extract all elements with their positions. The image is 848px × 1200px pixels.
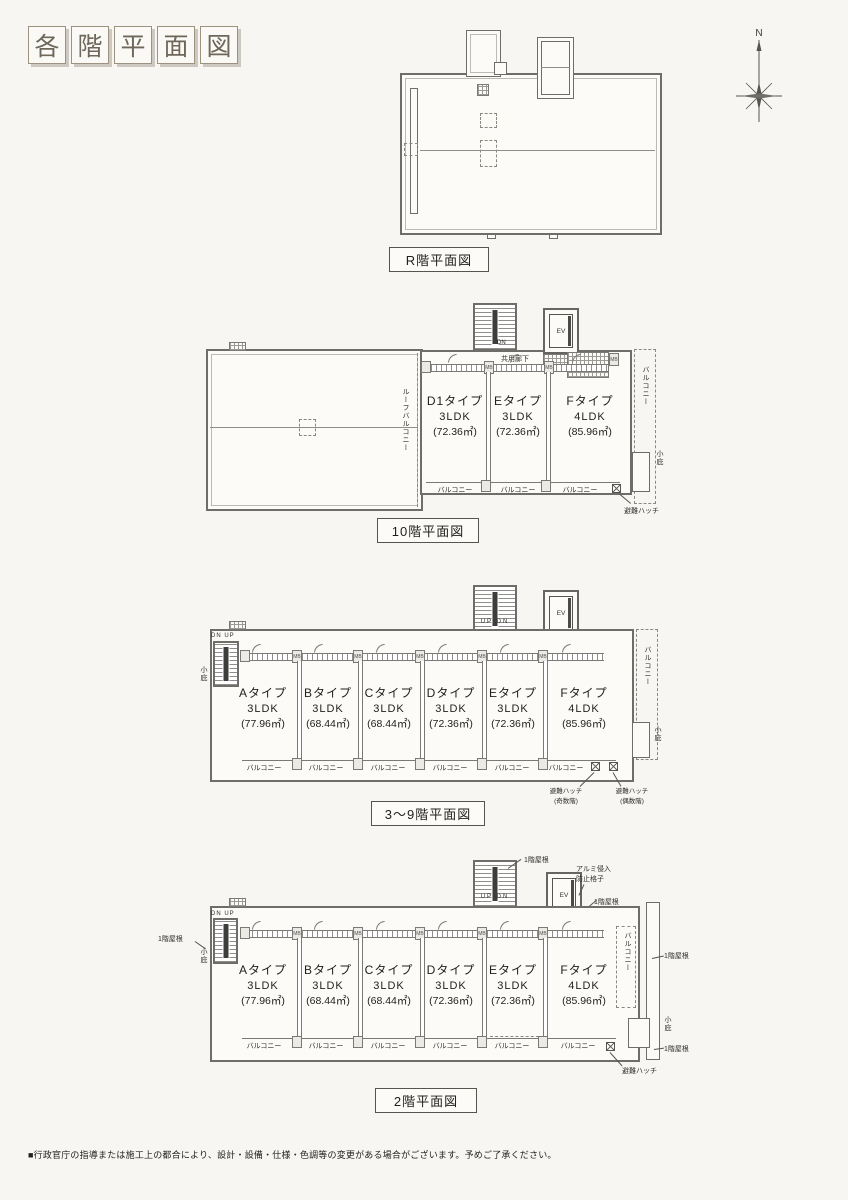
f39-balcony-post: [538, 758, 548, 770]
unit-label-e: Eタイプ 3LDK (72.36㎡): [489, 392, 547, 439]
f2-corridor-post: [240, 927, 250, 939]
roof-divider-line: [420, 150, 655, 151]
unit-name: Dタイプ: [422, 961, 480, 978]
unit-layout: 3LDK: [484, 703, 542, 715]
alumi-grate-line1: アルミ侵入: [576, 864, 611, 874]
alumi-grate-line2: 防止格子: [576, 874, 611, 884]
f39-corridor-post: [240, 650, 250, 662]
unit-label-b: Bタイプ 3LDK (68.44㎡): [299, 961, 357, 1008]
unit-area: (85.96㎡): [546, 993, 622, 1008]
f2-unit-f-extension: [628, 1018, 650, 1048]
escape-hatch-note: (奇数階): [536, 795, 596, 805]
f2-stair-updn-label: UP DN: [474, 894, 516, 900]
unit-area: (72.36㎡): [484, 716, 542, 731]
f2-escape-hatch-label: 避難ハッチ: [622, 1066, 657, 1076]
f2-balcony-label: バルコニー: [421, 1041, 479, 1051]
disclaimer-text: ■行政官庁の指導または施工上の都合により、設計・設備・仕様・色調等の変更がある場…: [28, 1148, 557, 1161]
unit-area: (72.36㎡): [424, 424, 486, 439]
north-compass-icon: N: [716, 24, 802, 128]
unit-layout: 3LDK: [231, 703, 295, 715]
unit-name: Cタイプ: [360, 684, 418, 701]
unit-name: Fタイプ: [546, 961, 622, 978]
escape-hatch-text: 避難ハッチ: [536, 785, 596, 795]
roof-equipment-pad: [480, 140, 497, 167]
f39-eave-right-label: 小庇: [652, 726, 662, 742]
roof-elevator-inner: [541, 41, 570, 95]
title-char-box: 平: [114, 26, 152, 64]
f10-balcony-post: [481, 480, 491, 492]
unit-layout: 3LDK: [360, 703, 418, 715]
f39-eave-left-label: 小庇: [198, 666, 208, 682]
title-char-box: 図: [200, 26, 238, 64]
f39-balcony-label: バルコニー: [297, 763, 355, 773]
title-char-box: 面: [157, 26, 195, 64]
f2-alumi-grate-label: アルミ侵入 防止格子: [576, 864, 611, 884]
unit-area: (85.96㎡): [549, 424, 631, 439]
unit-name: Dタイプ: [422, 684, 480, 701]
escape-hatch-icon: [612, 484, 621, 493]
f2-balcony-label: バルコニー: [549, 1041, 607, 1051]
scanned-floorplan-sheet: 各 階 平 面 図 N R階平面図 ルーフバルコニー: [0, 0, 848, 1200]
f39-balcony-label: バルコニー: [359, 763, 417, 773]
unit-name: Bタイプ: [299, 961, 357, 978]
unit-name: Eタイプ: [484, 961, 542, 978]
roof-elevator-tower: [537, 37, 574, 99]
f39-left-staircase-icon: [213, 641, 239, 687]
unit-label-a: Aタイプ 3LDK (77.96㎡): [231, 961, 295, 1008]
f2-roof1-top-label: 1階屋根: [524, 855, 549, 865]
leader-line: [620, 494, 631, 504]
f39-balcony-post: [353, 758, 363, 770]
unit-name: D1タイプ: [424, 392, 486, 409]
roof-left-pad: [404, 143, 418, 156]
f10-roof-balcony-label: ルーフバルコニー: [400, 388, 410, 452]
unit-label-d1: D1タイプ 3LDK (72.36㎡): [424, 392, 486, 439]
f10-stair-dn-label: DN: [497, 340, 506, 346]
f39-elevator-label: EV: [549, 596, 573, 630]
f10-elevator-label: EV: [549, 314, 573, 348]
unit-area: (68.44㎡): [360, 716, 418, 731]
f2-balcony-label: バルコニー: [235, 1041, 293, 1051]
unit-name: Bタイプ: [299, 684, 357, 701]
unit-layout: 3LDK: [489, 411, 547, 423]
unit-label-e: Eタイプ 3LDK (72.36㎡): [484, 961, 542, 1008]
unit-layout: 3LDK: [422, 703, 480, 715]
f39-balcony-label: バルコニー: [421, 763, 479, 773]
f39-balcony-post: [292, 758, 302, 770]
caption-roof-plan: R階平面図: [389, 247, 489, 272]
unit-layout: 3LDK: [299, 980, 357, 992]
unit-area: (77.96㎡): [231, 716, 295, 731]
unit-layout: 3LDK: [231, 980, 295, 992]
unit-area: (72.36㎡): [422, 716, 480, 731]
roof-stair-lobby: [494, 62, 507, 75]
caption-2f-plan: 2階平面図: [375, 1088, 477, 1113]
unit-name: Eタイプ: [489, 392, 547, 409]
escape-hatch-icon: [591, 762, 600, 771]
f10-side-balcony-label: バルコニー: [640, 366, 650, 406]
unit-area: (77.96㎡): [231, 993, 295, 1008]
f39-entry-vent: [229, 621, 246, 630]
roof-plan-outline: [400, 73, 662, 235]
f2-balcony-label: バルコニー: [359, 1041, 417, 1051]
f10-staircase-icon: [473, 303, 517, 351]
f39-unit-f-extension: [632, 722, 650, 758]
roof-elevator-divider: [541, 67, 570, 68]
unit-name: Fタイプ: [546, 684, 622, 701]
unit-area: (72.36㎡): [484, 993, 542, 1008]
f2-side-balcony-label: バルコニー: [622, 932, 632, 972]
escape-hatch-icon: [606, 1042, 615, 1051]
unit-label-d: Dタイプ 3LDK (72.36㎡): [422, 684, 480, 731]
unit-area: (85.96㎡): [546, 716, 622, 731]
unit-name: Cタイプ: [360, 961, 418, 978]
unit-area: (68.44㎡): [299, 716, 357, 731]
compass-n-label: N: [755, 28, 762, 39]
unit-layout: 3LDK: [360, 980, 418, 992]
f10-terrace-vent: [229, 342, 246, 351]
f10-eave-label: 小庇: [654, 450, 664, 466]
caption-3-9f-plan: 3〜9階平面図: [371, 801, 485, 826]
unit-name: Eタイプ: [484, 684, 542, 701]
f10-balcony-label: バルコニー: [552, 485, 608, 495]
f39-balcony-post: [477, 758, 487, 770]
f39-balcony-post: [415, 758, 425, 770]
unit-layout: 4LDK: [549, 411, 631, 423]
unit-name: Fタイプ: [549, 392, 631, 409]
unit-label-f: Fタイプ 4LDK (85.96㎡): [549, 392, 631, 439]
unit-layout: 3LDK: [299, 703, 357, 715]
roof-bottom-tab: [549, 234, 558, 239]
f10-terrace-dashed-boundary: [417, 353, 418, 507]
unit-label-a: Aタイプ 3LDK (77.96㎡): [231, 684, 295, 731]
f10-balcony-label: バルコニー: [427, 485, 483, 495]
unit-area: (72.36㎡): [422, 993, 480, 1008]
f39-stair-dnup-label: DN UP: [211, 633, 235, 639]
unit-label-f: Fタイプ 4LDK (85.96㎡): [546, 961, 622, 1008]
unit-label-c: Cタイプ 3LDK (68.44㎡): [360, 684, 418, 731]
f2-stair-dnup-label: DN UP: [211, 911, 235, 917]
escape-hatch-text: 避難ハッチ: [602, 785, 662, 795]
page-title: 各 階 平 面 図: [28, 26, 238, 64]
unit-label-c: Cタイプ 3LDK (68.44㎡): [360, 961, 418, 1008]
f10-balcony-label: バルコニー: [490, 485, 546, 495]
f2-roof1-left-label: 1階屋根: [158, 934, 183, 944]
title-char-box: 階: [71, 26, 109, 64]
unit-area: (68.44㎡): [360, 993, 418, 1008]
unit-layout: 3LDK: [422, 980, 480, 992]
f10-balcony-post: [541, 480, 551, 492]
caption-10f-plan: 10階平面図: [377, 518, 479, 543]
f10-corridor-post: [421, 361, 431, 373]
escape-hatch-note: (偶数階): [602, 795, 662, 805]
f39-staircase-icon: [473, 585, 517, 633]
unit-area: (72.36㎡): [489, 424, 547, 439]
f10-corridor-railing: [426, 364, 608, 372]
escape-hatch-icon: [609, 762, 618, 771]
f2-entry-vent: [229, 898, 246, 907]
title-char-box: 各: [28, 26, 66, 64]
f39-escape-hatch-odd-label: 避難ハッチ (奇数階): [536, 785, 596, 805]
unit-layout: 3LDK: [424, 411, 486, 423]
f39-balcony-label: バルコニー: [235, 763, 293, 773]
f39-balcony-label: バルコニー: [483, 763, 541, 773]
f2-balcony-post: [353, 1036, 363, 1048]
f2-left-staircase-icon: [213, 918, 238, 964]
f2-eave-left-label: 小庇: [198, 948, 208, 964]
unit-name: Aタイプ: [231, 684, 295, 701]
f10-elevator-icon: EV: [543, 308, 579, 354]
f39-stair-updn-label: UP DN: [474, 619, 516, 625]
f2-roof1-right-lower-label: 1階屋根: [664, 1044, 689, 1054]
unit-layout: 3LDK: [484, 980, 542, 992]
unit-layout: 4LDK: [546, 703, 622, 715]
f2-balcony-dashed-line: [490, 1036, 544, 1037]
f2-balcony-post: [477, 1036, 487, 1048]
roof-stair-tower-inner: [470, 34, 497, 73]
roof-parapet-line: [405, 78, 657, 230]
roof-bottom-tab: [487, 234, 496, 239]
f2-balcony-label: バルコニー: [297, 1041, 355, 1051]
roof-vent-hatched-box: [477, 84, 489, 96]
f10-escape-hatch-label: 避難ハッチ: [624, 506, 659, 516]
f2-balcony-post: [292, 1036, 302, 1048]
f2-balcony-post: [538, 1036, 548, 1048]
unit-label-d: Dタイプ 3LDK (72.36㎡): [422, 961, 480, 1008]
f2-roof1-right-upper-label: 1階屋根: [664, 951, 689, 961]
f2-eave-right-label: 小庇: [662, 1016, 672, 1032]
unit-layout: 4LDK: [546, 980, 622, 992]
unit-label-e: Eタイプ 3LDK (72.36㎡): [484, 684, 542, 731]
unit-label-f: Fタイプ 4LDK (85.96㎡): [546, 684, 622, 731]
roof-equipment-pad: [480, 113, 497, 128]
f2-balcony-post: [415, 1036, 425, 1048]
unit-name: Aタイプ: [231, 961, 295, 978]
unit-area: (68.44㎡): [299, 993, 357, 1008]
f10-meter-box: MB: [609, 353, 619, 366]
f10-unit-f-extension: [632, 452, 650, 492]
f2-balcony-label: バルコニー: [483, 1041, 541, 1051]
f10-terrace-column: [299, 419, 316, 436]
unit-label-b: Bタイプ 3LDK (68.44㎡): [299, 684, 357, 731]
f39-escape-hatch-even-label: 避難ハッチ (偶数階): [602, 785, 662, 805]
f39-side-balcony-label: バルコニー: [642, 646, 652, 686]
